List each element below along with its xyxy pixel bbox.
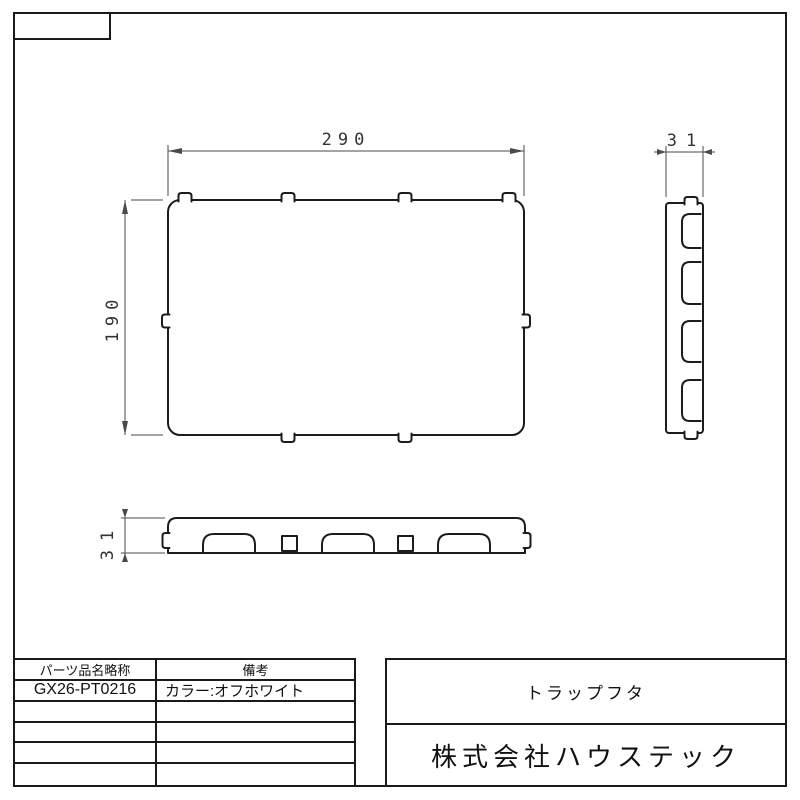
parts-table-empty-cell: [157, 702, 354, 723]
bottom-tab-right: [524, 533, 531, 548]
bottom-thickness-dim-label: 31: [98, 522, 118, 560]
parts-table-header-remarks: 備考: [157, 660, 354, 681]
plan-tab-left: [162, 315, 170, 328]
title-block: トラップフタ 株式会社ハウステック: [385, 658, 787, 787]
part-name: トラップフタ: [387, 660, 785, 725]
plan-tab-bottom-2: [399, 434, 412, 443]
parts-table-empty-cell: [15, 702, 157, 723]
plan-width-dim-label: 290: [322, 130, 371, 150]
parts-table: パーツ品名略称 備考 GX26-PT0216 カラー:オフホワイト: [13, 658, 356, 787]
parts-table-remark: カラー:オフホワイト: [157, 681, 354, 702]
side-view-body: [666, 203, 703, 433]
parts-table-empty-cell: [15, 723, 157, 744]
side-thickness-dim-label: 31: [667, 131, 705, 151]
plan-tab-right: [523, 315, 531, 328]
plan-tab-top-3: [399, 193, 412, 202]
bottom-foot-2: [322, 534, 374, 552]
plan-view-body: [168, 200, 524, 435]
side-tab-bottom: [685, 432, 698, 440]
plan-tab-top-2: [282, 193, 295, 202]
bottom-view: [163, 518, 531, 553]
company-name: 株式会社ハウステック: [387, 725, 785, 785]
plan-tab-top-1: [179, 193, 192, 202]
plan-view: [162, 193, 530, 442]
dimension-plan-width: 290: [168, 130, 524, 196]
plan-height-dim-label: 190: [103, 294, 123, 343]
dimension-bottom-thickness: 31: [98, 509, 165, 562]
parts-table-empty-cell: [157, 764, 354, 785]
parts-table-empty-cell: [15, 743, 157, 764]
bottom-foot-1: [203, 534, 255, 552]
parts-table-part-no: GX26-PT0216: [15, 681, 157, 702]
dimension-plan-height: 190: [103, 200, 163, 435]
parts-table-empty-cell: [157, 743, 354, 764]
side-tab-top: [685, 197, 698, 205]
side-view: [666, 197, 703, 439]
bottom-foot-3: [438, 534, 490, 552]
parts-table-empty-cell: [15, 764, 157, 785]
parts-table-empty-cell: [157, 723, 354, 744]
parts-table-header-name: パーツ品名略称: [15, 660, 157, 681]
plan-tab-top-4: [503, 193, 516, 202]
plan-tab-bottom-1: [282, 434, 295, 443]
dimension-side-thickness: 31: [654, 131, 715, 197]
bottom-tab-left: [163, 533, 170, 548]
